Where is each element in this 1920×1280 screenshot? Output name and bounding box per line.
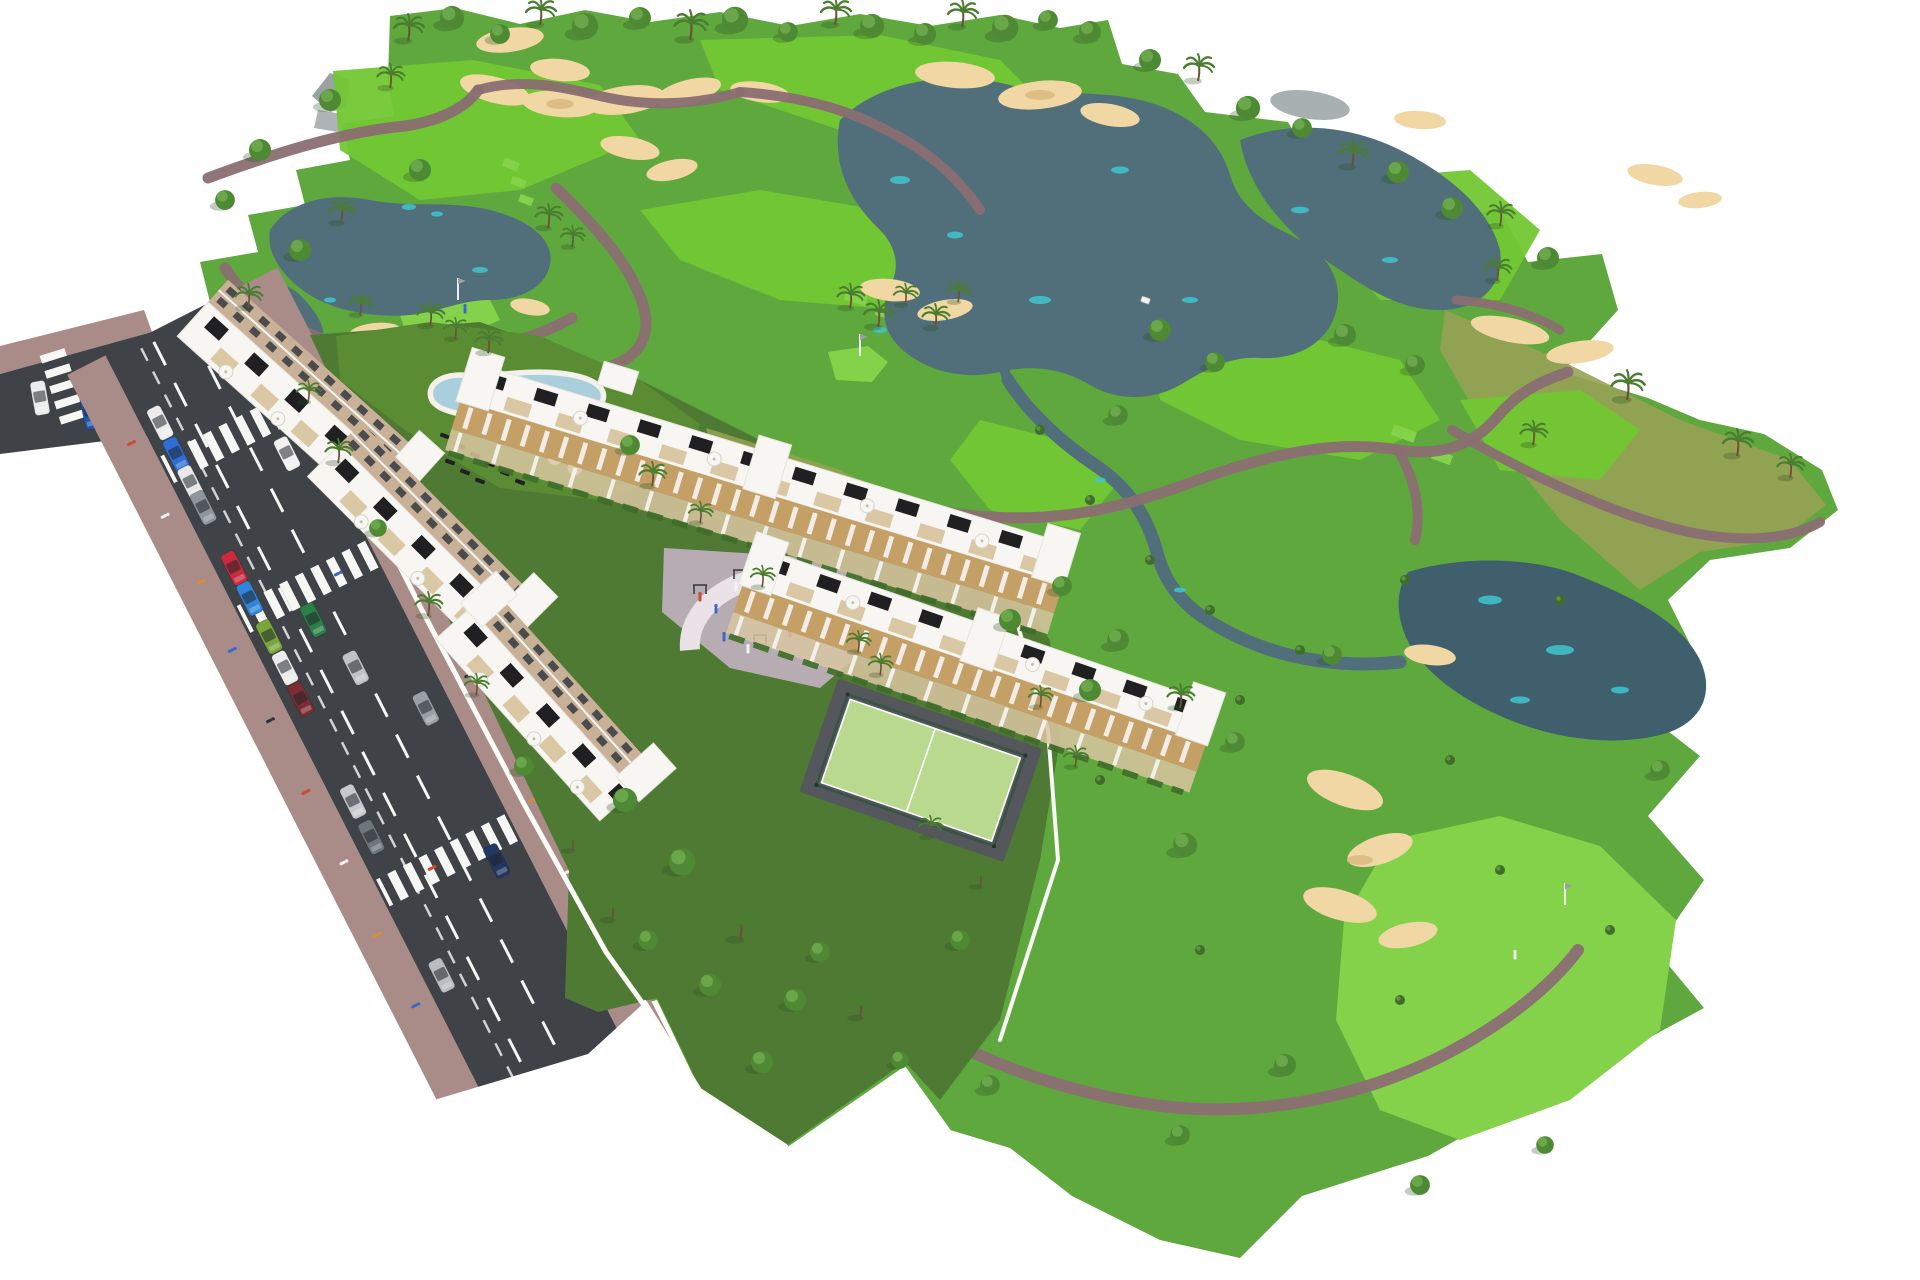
shrub [1445,755,1455,765]
shrub [1085,495,1095,505]
shrub [1495,865,1505,875]
golfer [463,304,466,314]
shrub [1205,605,1215,615]
tree [1531,247,1559,270]
shrub [1400,575,1410,585]
shrub [1195,945,1205,955]
tree [243,139,271,162]
render-canvas [0,0,1920,1280]
tree [1033,10,1058,31]
shrub [1295,645,1305,655]
tree [1405,1175,1430,1196]
aerial-render [0,0,1920,1280]
shrub [1395,995,1405,1005]
tree [1531,1136,1553,1154]
tree [1229,96,1260,121]
shrub [1555,595,1565,605]
shrub [1235,695,1245,705]
shrub [1095,775,1105,785]
palm-tree [1184,54,1214,85]
tree [1133,49,1161,72]
shrub [1605,925,1615,935]
shrub [1035,425,1045,435]
golfer [1513,950,1516,960]
shrub [1145,555,1155,565]
tree [210,190,235,211]
